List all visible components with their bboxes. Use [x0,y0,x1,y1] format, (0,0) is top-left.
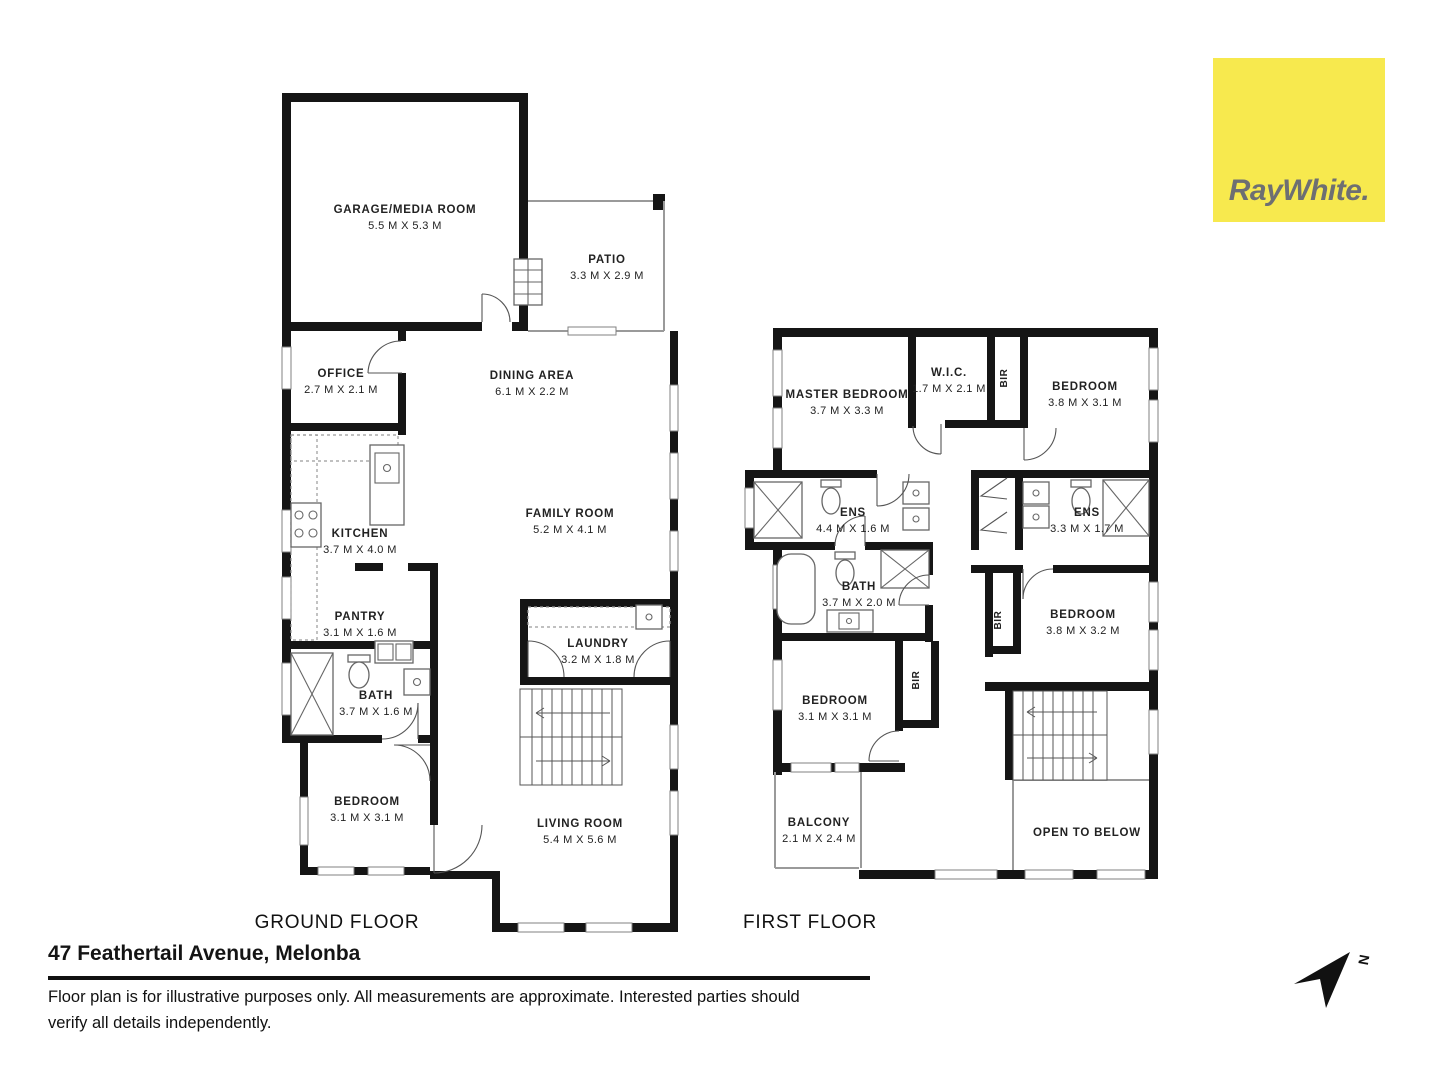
toilet-icon [1071,480,1091,487]
room-label-bath-first: BATH [842,581,876,593]
room-dims-pantry: 3.1 M X 1.6 M [323,627,397,639]
ground-floor-plan: GARAGE/MEDIA ROOM 5.5 M X 5.3 M PATIO 3.… [270,85,690,945]
patio-window-icon [514,259,542,305]
sink-icon [903,508,929,530]
room-dims-living: 5.4 M X 5.6 M [543,834,617,846]
room-label-laundry: LAUNDRY [567,638,628,650]
room-label-patio: PATIO [588,254,625,266]
room-label-open-below: OPEN TO BELOW [1033,827,1141,839]
sink-icon [1023,482,1049,504]
room-label-bedroom-mid: BEDROOM [1050,609,1116,621]
open-below-outline [1013,780,1149,870]
room-label-dining: DINING AREA [490,370,574,382]
room-label-pantry: PANTRY [335,611,386,623]
room-dims-wic: 1.7 M X 2.1 M [912,383,986,395]
linen-doors [981,478,1007,533]
sink-icon [404,669,430,695]
room-dims-bedroom-tr: 3.8 M X 3.1 M [1048,397,1122,409]
room-label-wic: W.I.C. [931,367,967,379]
address-title: 47 Feathertail Avenue, Melonba [48,942,360,966]
room-label-family: FAMILY ROOM [526,508,615,520]
bir-label-mid: BIR [993,610,1004,629]
floor-plan-page: GARAGE/MEDIA ROOM 5.5 M X 5.3 M PATIO 3.… [0,0,1440,1080]
toilet-icon [821,480,841,487]
first-stairs [1013,691,1107,780]
first-floor-title: FIRST FLOOR [710,912,910,934]
toilet-icon [348,655,370,662]
ray-white-logo-text: RayWhite. [1229,174,1370,222]
room-dims-office: 2.7 M X 2.1 M [304,384,378,396]
room-dims-bedroom: 3.1 M X 3.1 M [330,812,404,824]
ground-stairs [520,689,622,785]
room-dims-laundry: 3.2 M X 1.8 M [561,654,635,666]
cooktop-icon [291,503,321,547]
room-dims-bath: 3.7 M X 1.6 M [339,706,413,718]
room-dims-bath-first: 3.7 M X 2.0 M [822,597,896,609]
north-arrow-icon: N [1288,938,1378,1018]
bir-label-top: BIR [999,368,1010,387]
room-dims-dining: 6.1 M X 2.2 M [495,386,569,398]
room-dims-balcony: 2.1 M X 2.4 M [782,833,856,845]
sink-icon [1023,506,1049,528]
room-label-bedroom-low: BEDROOM [802,695,868,707]
room-label-bath: BATH [359,690,393,702]
ground-doors [368,294,510,873]
room-dims-ens-main: 4.4 M X 1.6 M [816,523,890,535]
room-label-bedroom-tr: BEDROOM [1052,381,1118,393]
room-label-ens-second: ENS [1074,507,1100,519]
disclaimer-line-2: verify all details independently. [48,1011,868,1037]
room-dims-garage: 5.5 M X 5.3 M [368,220,442,232]
room-label-office: OFFICE [318,368,365,380]
room-label-bedroom: BEDROOM [334,796,400,808]
ground-floor-title: GROUND FLOOR [237,912,437,934]
ground-bath-fixtures [291,641,430,735]
laundry-sink-icon [636,605,662,629]
room-label-garage: GARAGE/MEDIA ROOM [334,204,477,216]
disclaimer-text: Floor plan is for illustrative purposes … [48,985,868,1036]
footer-divider [48,976,870,980]
patio-walls [528,201,664,331]
room-dims-master: 3.7 M X 3.3 M [810,405,884,417]
first-floor-plan: MASTER BEDROOM 3.7 M X 3.3 M W.I.C. 1.7 … [735,320,1195,950]
room-dims-bedroom-low: 3.1 M X 3.1 M [798,711,872,723]
room-label-balcony: BALCONY [788,817,850,829]
room-label-living: LIVING ROOM [537,818,623,830]
room-dims-patio: 3.3 M X 2.9 M [570,270,644,282]
room-label-kitchen: KITCHEN [332,528,389,540]
room-dims-kitchen: 3.7 M X 4.0 M [323,544,397,556]
disclaimer-line-1: Floor plan is for illustrative purposes … [48,985,868,1011]
bir-label-low: BIR [911,670,922,689]
room-dims-ens-second: 3.3 M X 1.7 M [1050,523,1124,535]
room-label-master: MASTER BEDROOM [785,389,908,401]
room-label-ens-main: ENS [840,507,866,519]
room-dims-bedroom-mid: 3.8 M X 3.2 M [1046,625,1120,637]
bathtub-icon [777,554,815,624]
room-dims-family: 5.2 M X 4.1 M [533,524,607,536]
north-label: N [1355,953,1373,966]
toilet-icon [835,552,855,559]
ray-white-logo: RayWhite. [1213,58,1385,222]
